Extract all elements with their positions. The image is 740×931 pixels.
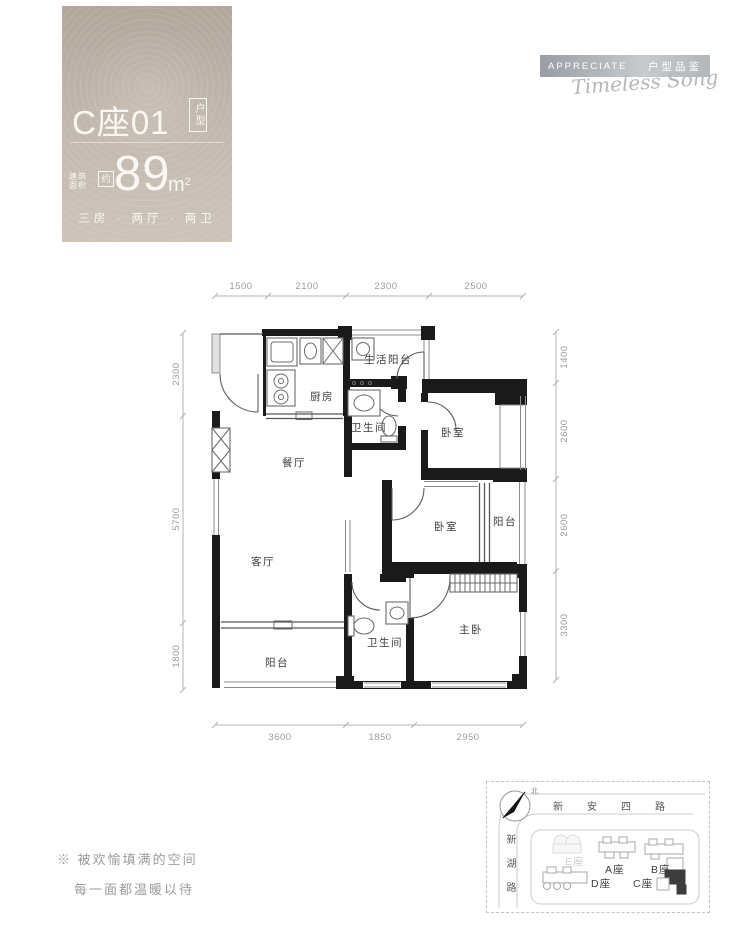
tagline-line1: ※ 被欢愉填满的空间 <box>57 845 198 875</box>
room-label-living: 客厅 <box>251 555 275 568</box>
room-label-bath-2: 卫生间 <box>367 636 403 649</box>
compass <box>500 791 530 821</box>
area-unit: m2 <box>168 174 191 197</box>
dim-label: 5700 <box>171 507 182 530</box>
dim-label: 2300 <box>171 362 182 385</box>
area-approx-box: 约 <box>98 171 114 187</box>
building-label-b: B座 <box>651 862 671 877</box>
card-divider <box>70 142 224 143</box>
unit-number: C座01 <box>72 96 170 144</box>
area-value: 89 <box>114 146 171 202</box>
dim-label: 1400 <box>559 345 570 368</box>
doors <box>220 352 456 618</box>
room-label-kitchen: 厨房 <box>310 390 334 403</box>
room-label-balcony-south: 阳台 <box>265 656 289 669</box>
building-e <box>553 835 581 853</box>
dim-label: 2500 <box>464 281 487 292</box>
dim-label: 2600 <box>559 513 570 536</box>
room-label-service-balcony: 生活阳台 <box>364 353 412 366</box>
brand-signature: Timeless Song <box>571 65 724 119</box>
room-label-bath-1: 卫生间 <box>351 421 387 434</box>
dim-label: 2300 <box>374 281 397 292</box>
dim-label: 2100 <box>295 281 318 292</box>
room-label-dining: 餐厅 <box>282 456 306 469</box>
dim-label: 2600 <box>559 419 570 442</box>
floor-plan: 1500 2100 2300 2500 3600 1850 2950 2300 … <box>148 272 588 750</box>
tagline-line2: 每一面都温暖以待 <box>57 875 198 905</box>
road-top-label: 新安四路 <box>553 798 689 813</box>
building-label-e: E座 <box>565 854 585 869</box>
dim-label: 2950 <box>456 732 479 743</box>
building-b <box>645 839 683 859</box>
area-prefix: 建筑 面积 <box>69 172 87 190</box>
north-label: 北 <box>531 786 538 796</box>
unit-card: C座01 户型 建筑 面积 约 89 m2 三房 · 两厅 · 两卫 <box>62 6 232 242</box>
building-label-d: D座 <box>591 876 611 891</box>
brand-en: APPRECIATE <box>548 61 627 72</box>
dim-label: 3300 <box>559 613 570 636</box>
dim-label: 3600 <box>268 732 291 743</box>
room-label-balcony-east: 阳台 <box>493 515 517 528</box>
building-label-a: A座 <box>605 862 625 877</box>
dim-label: 1800 <box>171 644 182 667</box>
building-a <box>599 837 635 858</box>
building-d <box>543 867 587 890</box>
site-map: 北 新安四路 新湖路 E座 A座 B座 D座 C座 <box>486 781 710 913</box>
unit-type-tag: 户型 <box>189 98 207 132</box>
layout-summary: 三房 · 两厅 · 两卫 <box>62 210 232 226</box>
room-label-bedroom-1: 卧室 <box>441 426 465 439</box>
dim-label: 1500 <box>229 281 252 292</box>
tagline: ※ 被欢愉填满的空间 每一面都温暖以待 <box>57 845 198 905</box>
road-left-label: 新湖路 <box>502 834 517 906</box>
room-label-master: 主卧 <box>459 623 483 636</box>
room-label-bedroom-2: 卧室 <box>434 520 458 533</box>
building-label-c: C座 <box>633 876 653 891</box>
dim-label: 1850 <box>368 732 391 743</box>
